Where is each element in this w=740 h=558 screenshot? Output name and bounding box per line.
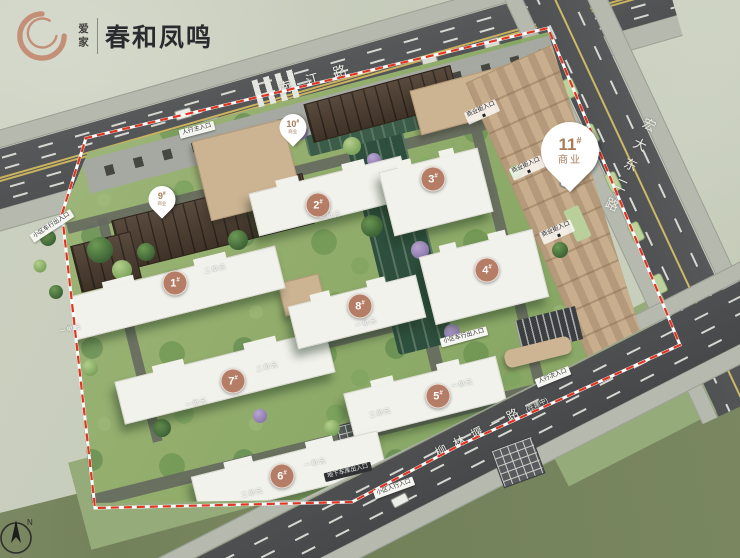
tree <box>87 237 113 263</box>
pin-subtitle: 商业 <box>558 156 582 166</box>
pin-shape: 10# 商业 <box>274 108 312 146</box>
badge-hash: # <box>434 173 437 179</box>
building-7-badge: 7# <box>221 369 246 394</box>
compass-north-label: N <box>27 518 33 527</box>
pin-shape: 9# 商业 <box>143 180 181 218</box>
site-plan-canvas: 南江路 柳林堰一路(在建中) <box>0 0 740 558</box>
badge-hash: # <box>283 470 286 476</box>
tree <box>137 243 155 261</box>
pin-subtitle: 商业 <box>158 202 167 207</box>
car <box>174 107 193 121</box>
tree <box>49 285 63 299</box>
building-4-badge: 4# <box>475 258 500 283</box>
building-3-badge: 3# <box>421 167 446 192</box>
badge-hash: # <box>234 375 237 381</box>
pin-10: 10# 商业 <box>280 114 307 141</box>
tree <box>324 420 340 436</box>
pin-shape: 11# 商业 <box>529 110 611 192</box>
pin-9: 9# 商业 <box>149 186 176 213</box>
tree <box>228 230 248 250</box>
pin-number: 10# <box>287 120 300 129</box>
badge-hash: # <box>439 390 442 396</box>
pin-subtitle: 商业 <box>288 130 297 135</box>
pin-11: 11# 商业 <box>541 122 599 180</box>
compass-icon: N <box>0 510 44 558</box>
tree <box>361 215 383 237</box>
badge-hash: # <box>488 264 491 270</box>
badge-hash: # <box>176 277 179 283</box>
building-8-badge: 8# <box>348 294 373 319</box>
tree <box>552 242 568 258</box>
car <box>390 492 410 509</box>
building-1-badge: 1# <box>163 271 188 296</box>
tree <box>343 137 361 155</box>
logo-divider <box>97 18 98 54</box>
brand-logo: 爱家 春和凤鸣 <box>16 10 213 62</box>
tree <box>82 360 98 376</box>
pin-number: 9# <box>158 192 166 201</box>
brand-small-text: 爱家 <box>75 23 90 50</box>
brand-name: 春和凤鸣 <box>105 18 213 54</box>
tree <box>34 260 47 273</box>
brand-ring-icon <box>16 10 68 62</box>
pin-number: 11# <box>559 136 582 153</box>
tree <box>253 409 267 423</box>
building-6-badge: 6# <box>270 464 295 489</box>
badge-hash: # <box>361 300 364 306</box>
tree <box>153 419 171 437</box>
building-5-badge: 5# <box>426 384 451 409</box>
badge-hash: # <box>319 199 322 205</box>
